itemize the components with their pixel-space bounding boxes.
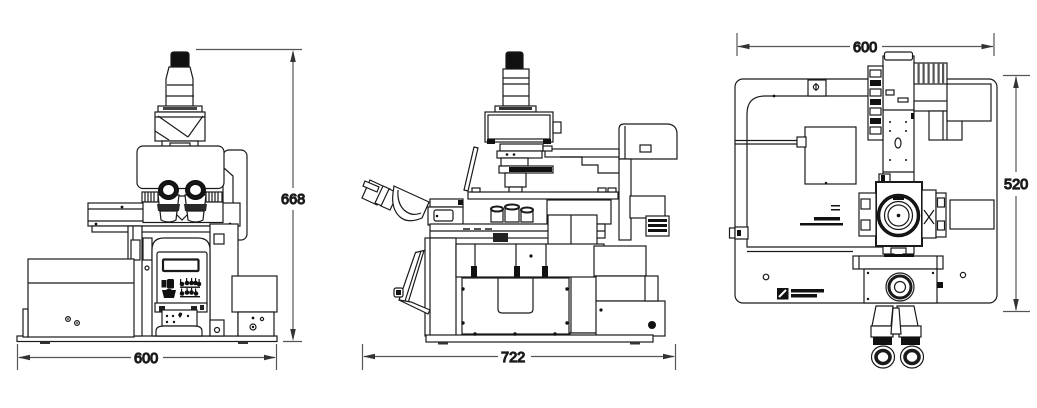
svg-text:600: 600 [134,351,158,367]
svg-text:722: 722 [501,350,525,366]
svg-text:520: 520 [1004,177,1028,193]
svg-text:600: 600 [853,40,877,56]
svg-text:668: 668 [281,192,305,208]
